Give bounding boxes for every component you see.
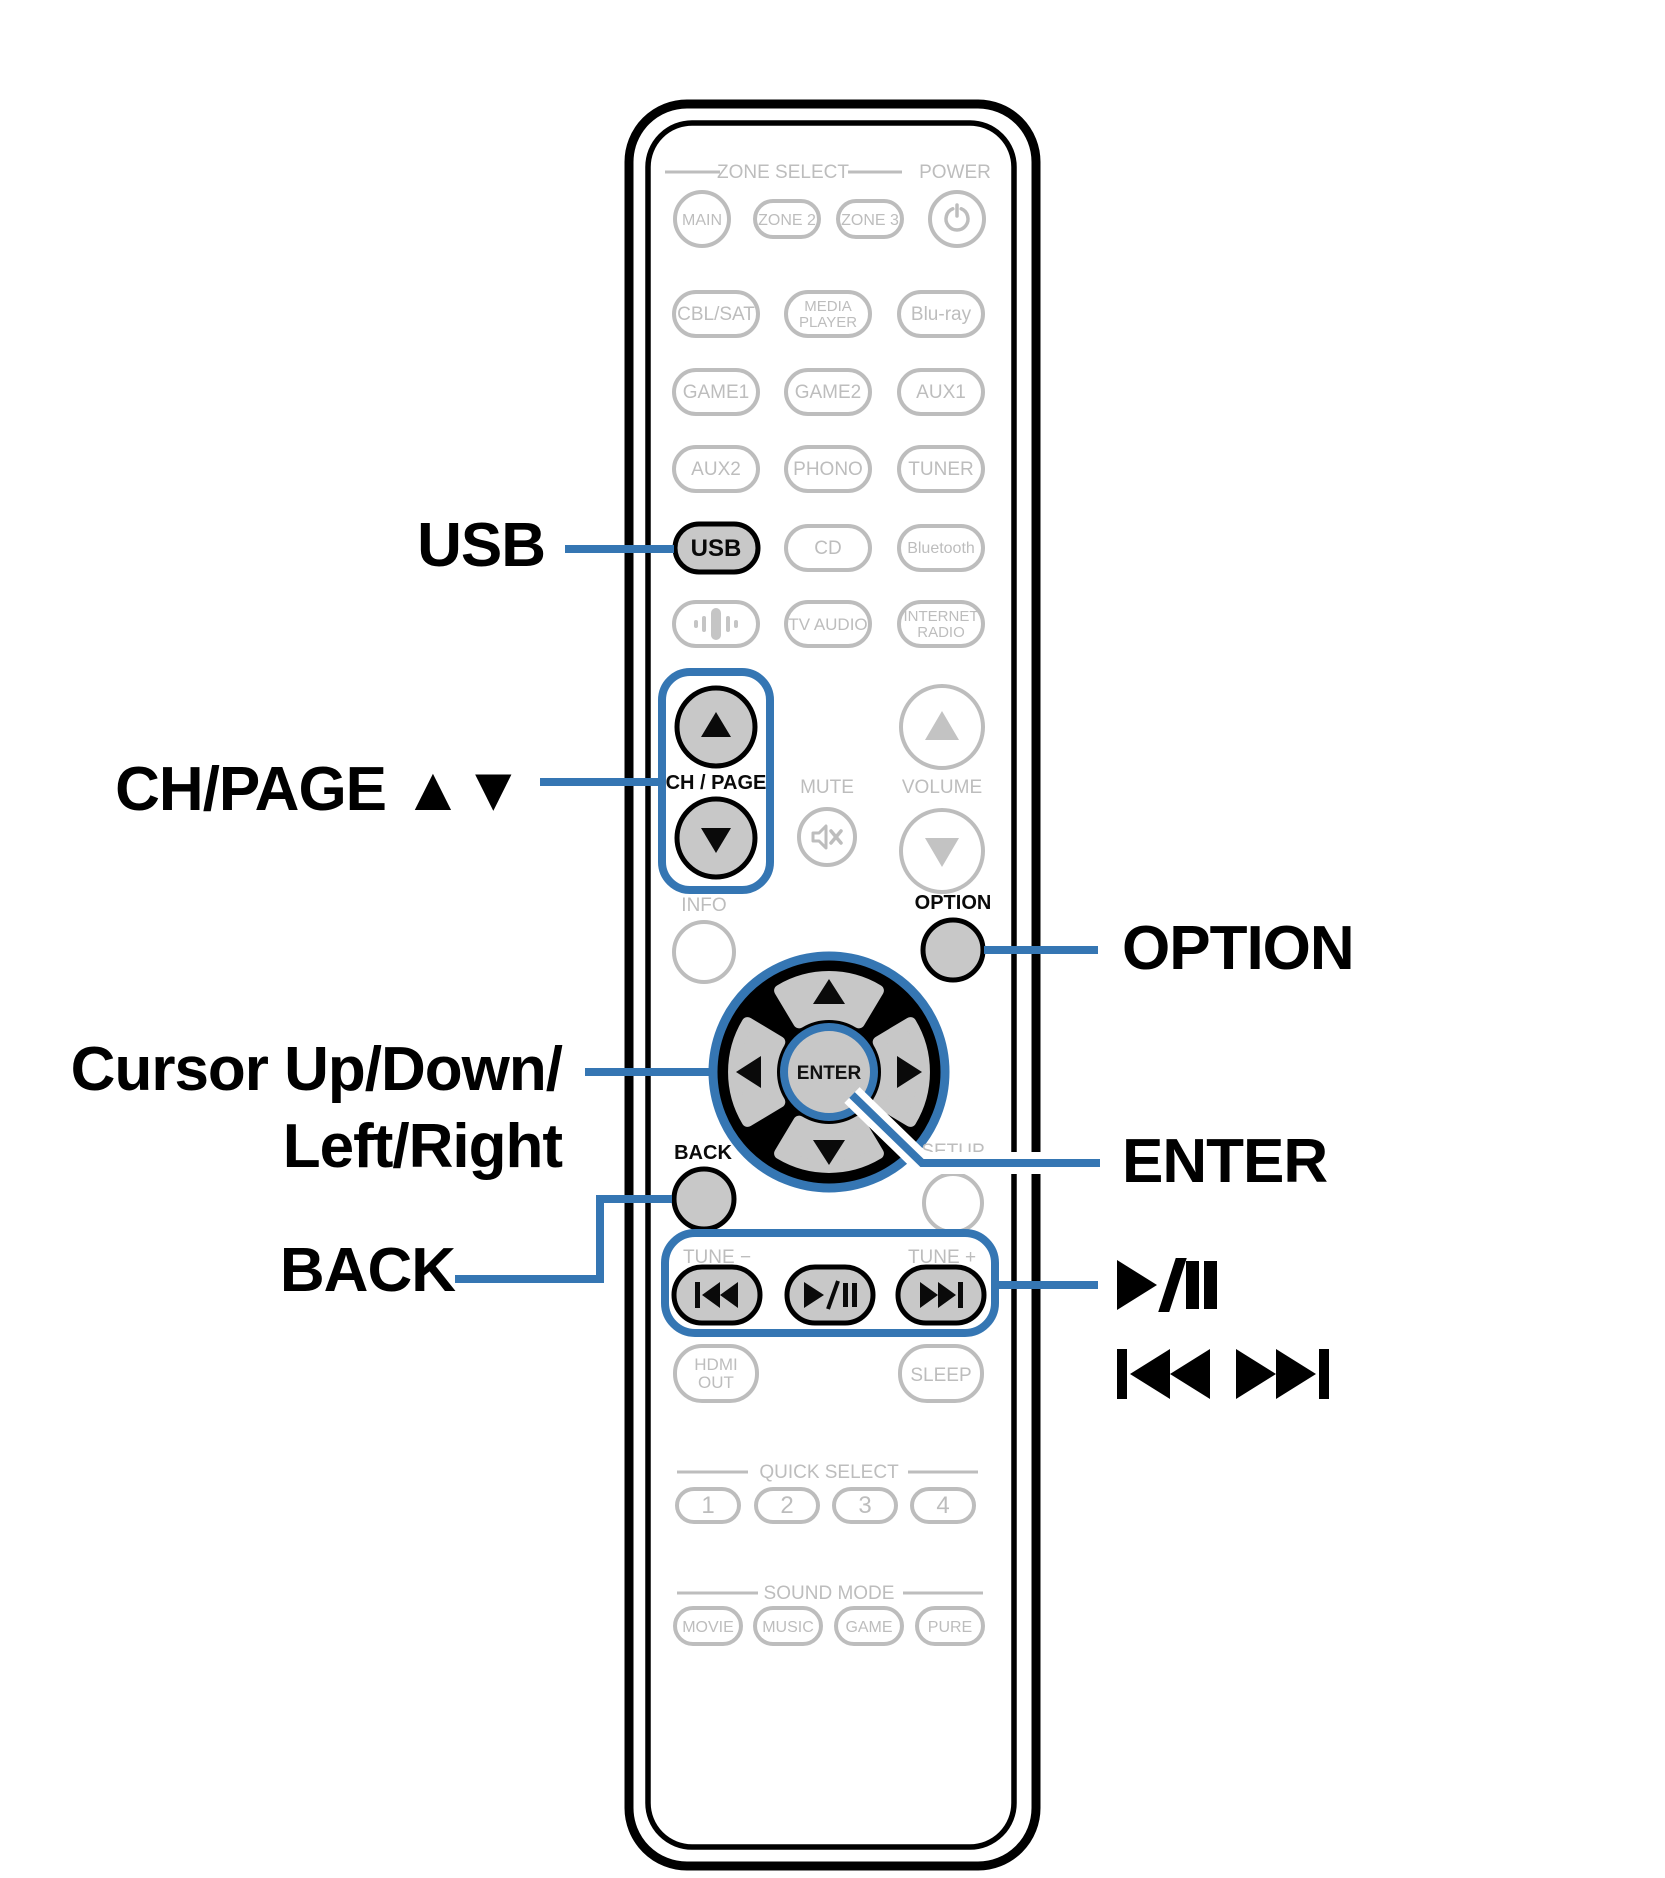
main-zone-button-label: MAIN <box>682 212 722 229</box>
enter-annotation: ENTER <box>1122 1126 1327 1197</box>
play-pause-button[interactable] <box>787 1267 873 1323</box>
mute-label: MUTE <box>800 777 854 798</box>
skip-back-button[interactable] <box>674 1267 760 1323</box>
mute-button[interactable] <box>799 809 855 865</box>
audio-waveform-button[interactable] <box>674 602 758 646</box>
hdmi-out-label-line1: HDMI <box>694 1355 737 1374</box>
cbl-sat-label: CBL/SAT <box>677 304 755 325</box>
ch-page-down-button[interactable] <box>677 799 755 877</box>
ch-page-annotation: CH/PAGE ▲▼ <box>115 754 523 825</box>
skip-annotation <box>1117 1349 1329 1399</box>
bluetooth-label: Bluetooth <box>907 540 975 557</box>
cursor-annotation: Cursor Up/Down/ Left/Right <box>71 1031 562 1185</box>
aux1-label: AUX1 <box>916 382 966 403</box>
pause-bar-shape <box>1186 1261 1199 1309</box>
internet-radio-label-line1: INTERNET <box>904 608 979 625</box>
quick-select-2-label: 2 <box>780 1492 793 1519</box>
quick-select-3-label: 3 <box>858 1492 871 1519</box>
slash-shape <box>1158 1258 1187 1312</box>
info-button[interactable] <box>674 922 734 982</box>
info-label: INFO <box>681 895 726 916</box>
aux2-label: AUX2 <box>691 459 741 480</box>
pure-label: PURE <box>928 1619 972 1636</box>
phono-label: PHONO <box>793 459 863 480</box>
zone3-button-label: ZONE 3 <box>841 212 899 229</box>
music-label: MUSIC <box>762 1619 814 1636</box>
option-button-label: OPTION <box>915 892 992 914</box>
volume-label: VOLUME <box>902 777 982 798</box>
movie-label: MOVIE <box>682 1619 734 1636</box>
tv-audio-label: TV AUDIO <box>788 615 867 634</box>
sleep-label: SLEEP <box>910 1365 971 1386</box>
volume-up-button[interactable] <box>901 686 983 768</box>
power-button[interactable] <box>930 192 984 246</box>
manual-diagram-page: ZONE SELECT POWER MAIN ZONE 2 ZONE 3 CBL… <box>0 0 1665 1878</box>
usb-annotation: USB <box>417 510 545 581</box>
zone2-button-label: ZONE 2 <box>758 212 816 229</box>
volume-down-button[interactable] <box>901 810 983 892</box>
skip-forward-bar-shape <box>1319 1349 1329 1399</box>
cursor-annotation-line2: Left/Right <box>71 1108 562 1185</box>
skip-forward-triangle-shape <box>1236 1349 1276 1399</box>
sound-mode-header: SOUND MODE <box>764 1583 895 1604</box>
back-button-label: BACK <box>674 1142 732 1164</box>
zone-select-header: ZONE SELECT <box>717 162 849 183</box>
ch-page-up-button[interactable] <box>677 688 755 766</box>
skip-back-triangle-shape <box>1130 1349 1170 1399</box>
tuner-label: TUNER <box>908 459 973 480</box>
cd-label: CD <box>814 538 841 559</box>
quick-select-4-label: 4 <box>936 1492 949 1519</box>
power-header: POWER <box>919 162 991 183</box>
skip-back-triangle-shape <box>1170 1349 1210 1399</box>
setup-button[interactable] <box>924 1174 982 1232</box>
quick-select-header: QUICK SELECT <box>759 1462 899 1483</box>
skip-forward-triangle-shape <box>1276 1349 1316 1399</box>
enter-button-label: ENTER <box>797 1063 862 1084</box>
blu-ray-label: Blu-ray <box>911 304 972 325</box>
back-button[interactable] <box>674 1169 734 1229</box>
option-annotation: OPTION <box>1122 913 1354 984</box>
skip-forward-button[interactable] <box>898 1267 984 1323</box>
game2-label: GAME2 <box>795 382 862 403</box>
cursor-annotation-line1: Cursor Up/Down/ <box>71 1031 562 1108</box>
play-pause-annotation <box>1117 1258 1217 1312</box>
media-player-label-line2: PLAYER <box>799 314 857 331</box>
hdmi-out-label-line2: OUT <box>698 1373 734 1392</box>
game-label: GAME <box>845 1619 892 1636</box>
ch-page-button-label: CH / PAGE <box>666 772 767 794</box>
play-triangle-shape <box>1117 1260 1157 1310</box>
back-annotation: BACK <box>280 1235 455 1306</box>
quick-select-1-label: 1 <box>701 1492 714 1519</box>
media-player-label-line1: MEDIA <box>804 298 852 315</box>
internet-radio-label-line2: RADIO <box>917 624 965 641</box>
game1-label: GAME1 <box>683 382 750 403</box>
pause-bar-shape <box>1204 1261 1217 1309</box>
option-button[interactable] <box>923 920 983 980</box>
usb-button-label: USB <box>691 535 742 562</box>
skip-back-bar-shape <box>1117 1349 1127 1399</box>
